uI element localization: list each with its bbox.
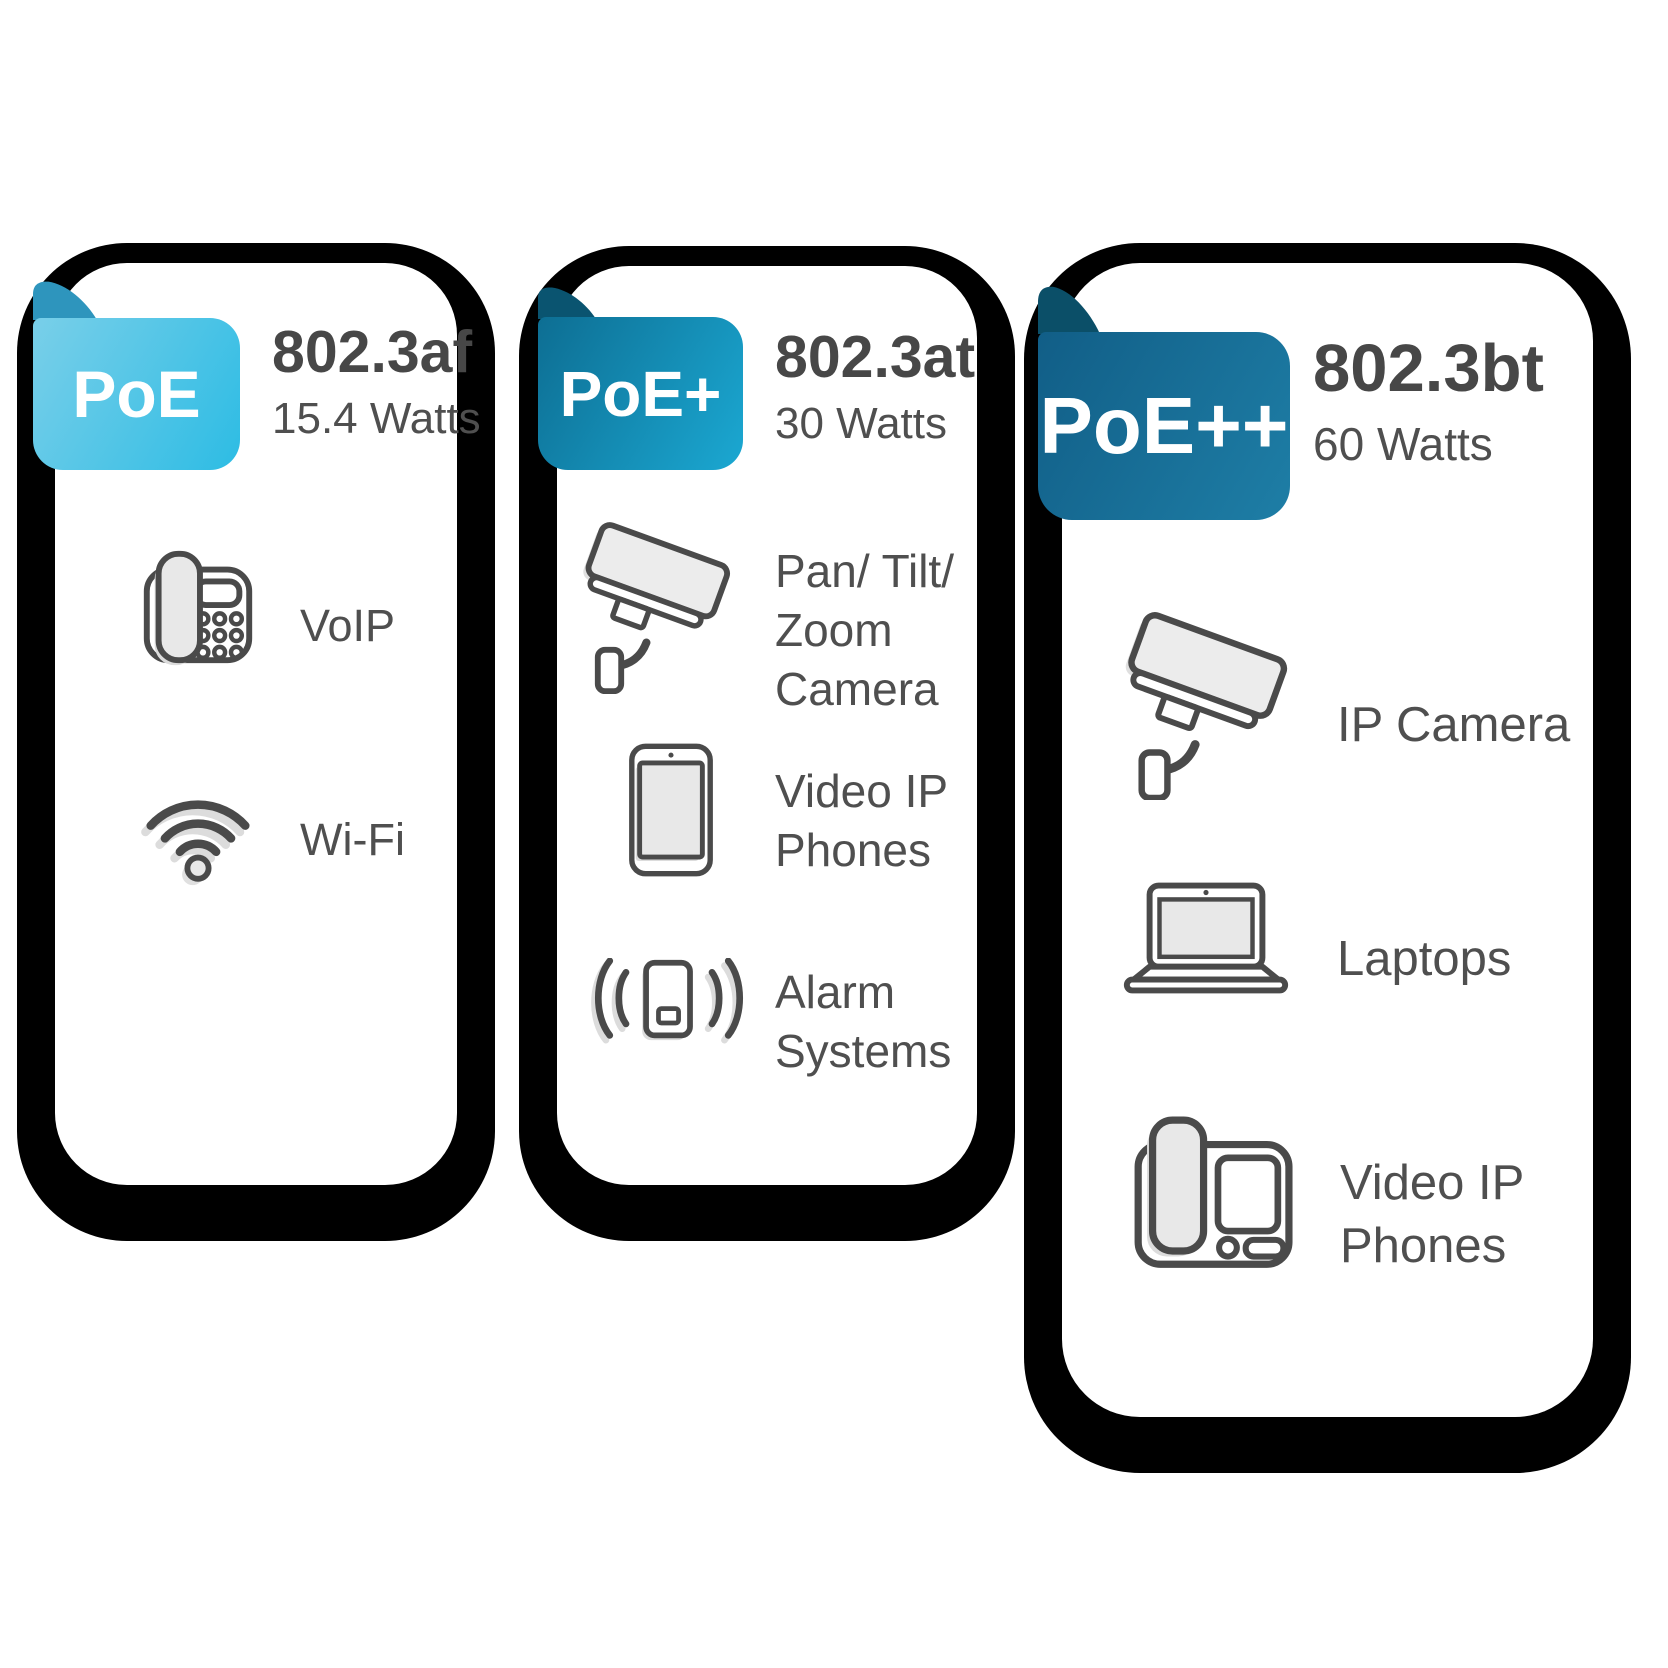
ribbon-fold-icon xyxy=(33,281,97,320)
device-label: Laptops xyxy=(1337,928,1597,991)
ribbon-fold-icon xyxy=(538,287,596,319)
wifi-icon xyxy=(128,770,268,890)
poe-plus-plus-badge: PoE++ xyxy=(1038,332,1290,520)
device-label: Alarm Systems xyxy=(775,963,1005,1081)
device-label: Video IP Phones xyxy=(1340,1152,1600,1278)
poe-plus-plus-heading: 802.3bt 60 Watts xyxy=(1313,330,1544,471)
device-label: VoIP xyxy=(300,598,395,654)
poe-badge: PoE xyxy=(33,318,240,470)
standard-name: 802.3at xyxy=(775,323,975,391)
poe-heading: 802.3af 15.4 Watts xyxy=(272,318,481,444)
device-label: Pan/ Tilt/ Zoom Camera xyxy=(775,542,1005,719)
device-label: Video IP Phones xyxy=(775,762,1005,880)
device-label: Wi-Fi xyxy=(300,812,405,868)
poe-standards-infographic: PoE 802.3af 15.4 Watts VoIP xyxy=(0,0,1668,1668)
wattage: 30 Watts xyxy=(775,399,975,449)
alarm-system-icon xyxy=(583,958,755,1065)
voip-phone-icon xyxy=(133,542,263,672)
poe-plus-badge: PoE+ xyxy=(538,317,743,470)
standard-name: 802.3af xyxy=(272,318,481,386)
wattage: 60 Watts xyxy=(1313,417,1544,471)
poe-plus-heading: 802.3at 30 Watts xyxy=(775,323,975,449)
wattage: 15.4 Watts xyxy=(272,394,481,444)
device-label: IP Camera xyxy=(1337,694,1597,757)
ptz-camera-icon xyxy=(578,512,740,694)
ip-camera-icon xyxy=(1115,602,1303,800)
tablet-video-ip-phone-icon xyxy=(622,740,720,880)
laptop-icon xyxy=(1112,876,1300,1004)
ribbon-fold-icon xyxy=(1038,286,1100,334)
desk-video-ip-phone-icon xyxy=(1116,1106,1310,1274)
standard-name: 802.3bt xyxy=(1313,330,1544,407)
